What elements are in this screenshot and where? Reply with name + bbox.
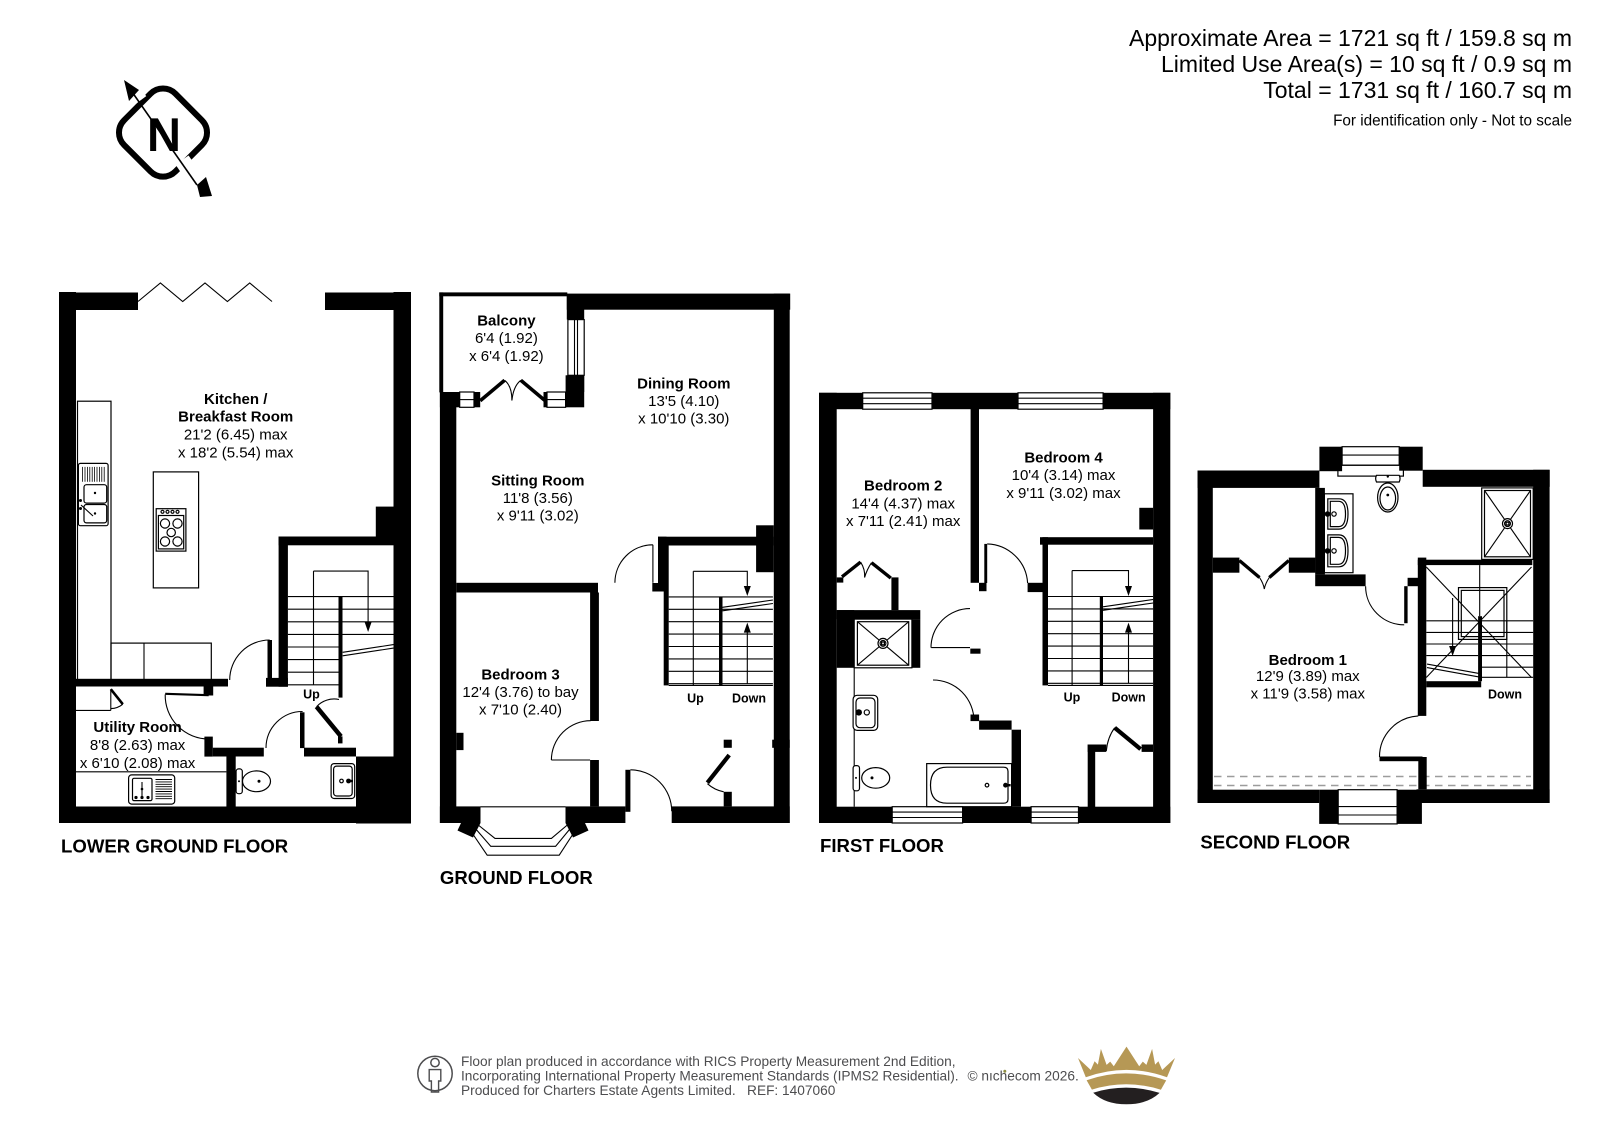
svg-text:x 6'10 (2.08) max: x 6'10 (2.08) max [80,755,196,772]
svg-text:Limited Use Area(s) = 10 sq ft: Limited Use Area(s) = 10 sq ft / 0.9 sq … [1161,51,1572,77]
svg-text:x 6'4 (1.92): x 6'4 (1.92) [469,348,544,365]
svg-text:Incorporating International Pr: Incorporating International Property Mea… [461,1069,959,1084]
svg-text:x 7'10 (2.40): x 7'10 (2.40) [479,702,562,719]
svg-text:Utility Room: Utility Room [93,719,181,736]
svg-text:Approximate Area = 1721 sq ft: Approximate Area = 1721 sq ft / 159.8 sq… [1129,25,1572,51]
svg-text:14'4 (4.37) max: 14'4 (4.37) max [851,495,955,512]
svg-text:11'8 (3.56): 11'8 (3.56) [503,490,573,507]
svg-text:x 10'10 (3.30): x 10'10 (3.30) [638,411,729,428]
svg-text:Down: Down [1488,688,1522,702]
svg-text:Down: Down [732,691,766,705]
svg-text:SECOND FLOOR: SECOND FLOOR [1200,832,1350,853]
svg-text:12'9 (3.89) max: 12'9 (3.89) max [1256,668,1360,685]
svg-text:x 9'11 (3.02): x 9'11 (3.02) [497,508,579,525]
svg-text:LOWER GROUND FLOOR: LOWER GROUND FLOOR [61,836,289,857]
svg-text:Down: Down [1112,691,1146,705]
svg-text:Bedroom 4: Bedroom 4 [1024,450,1103,467]
svg-text:N: N [147,108,181,161]
svg-text:Produced for Charters Estate A: Produced for Charters Estate Agents Limi… [461,1083,836,1098]
svg-text:x 18'2 (5.54) max: x 18'2 (5.54) max [178,444,294,461]
svg-text:Breakfast Room: Breakfast Room [178,409,293,426]
svg-text:© nıchecom 2026.: © nıchecom 2026. [968,1069,1079,1084]
svg-text:Up: Up [1064,691,1081,705]
svg-text:Up: Up [687,691,704,705]
svg-text:Balcony: Balcony [477,312,536,329]
svg-text:GROUND FLOOR: GROUND FLOOR [440,867,593,888]
svg-text:Bedroom 2: Bedroom 2 [864,478,942,495]
svg-text:Floor plan produced in accorda: Floor plan produced in accordance with R… [461,1054,956,1069]
svg-text:For identification only - Not: For identification only - Not to scale [1333,113,1572,130]
svg-text:10'4 (3.14) max: 10'4 (3.14) max [1012,467,1116,484]
svg-text:Total = 1731 sq ft / 160.7 sq: Total = 1731 sq ft / 160.7 sq m [1263,77,1572,103]
svg-text:FIRST FLOOR: FIRST FLOOR [820,835,945,856]
svg-text:Bedroom 3: Bedroom 3 [481,666,559,683]
svg-text:Kitchen /: Kitchen / [204,391,268,408]
svg-text:21'2 (6.45) max: 21'2 (6.45) max [184,427,288,444]
svg-text:12'4 (3.76) to bay: 12'4 (3.76) to bay [462,684,579,701]
svg-text:Up: Up [303,688,320,702]
svg-text:x 9'11 (3.02) max: x 9'11 (3.02) max [1006,485,1121,502]
svg-text:8'8 (2.63) max: 8'8 (2.63) max [90,737,186,754]
svg-text:Sitting Room: Sitting Room [491,472,584,489]
svg-text:13'5 (4.10): 13'5 (4.10) [648,393,719,410]
svg-text:Bedroom 1: Bedroom 1 [1269,652,1347,669]
svg-text:Dining Room: Dining Room [637,376,730,393]
svg-text:6'4 (1.92): 6'4 (1.92) [475,330,538,347]
svg-text:x 11'9 (3.58) max: x 11'9 (3.58) max [1251,685,1366,702]
svg-text:x 7'11 (2.41) max: x 7'11 (2.41) max [846,513,961,530]
